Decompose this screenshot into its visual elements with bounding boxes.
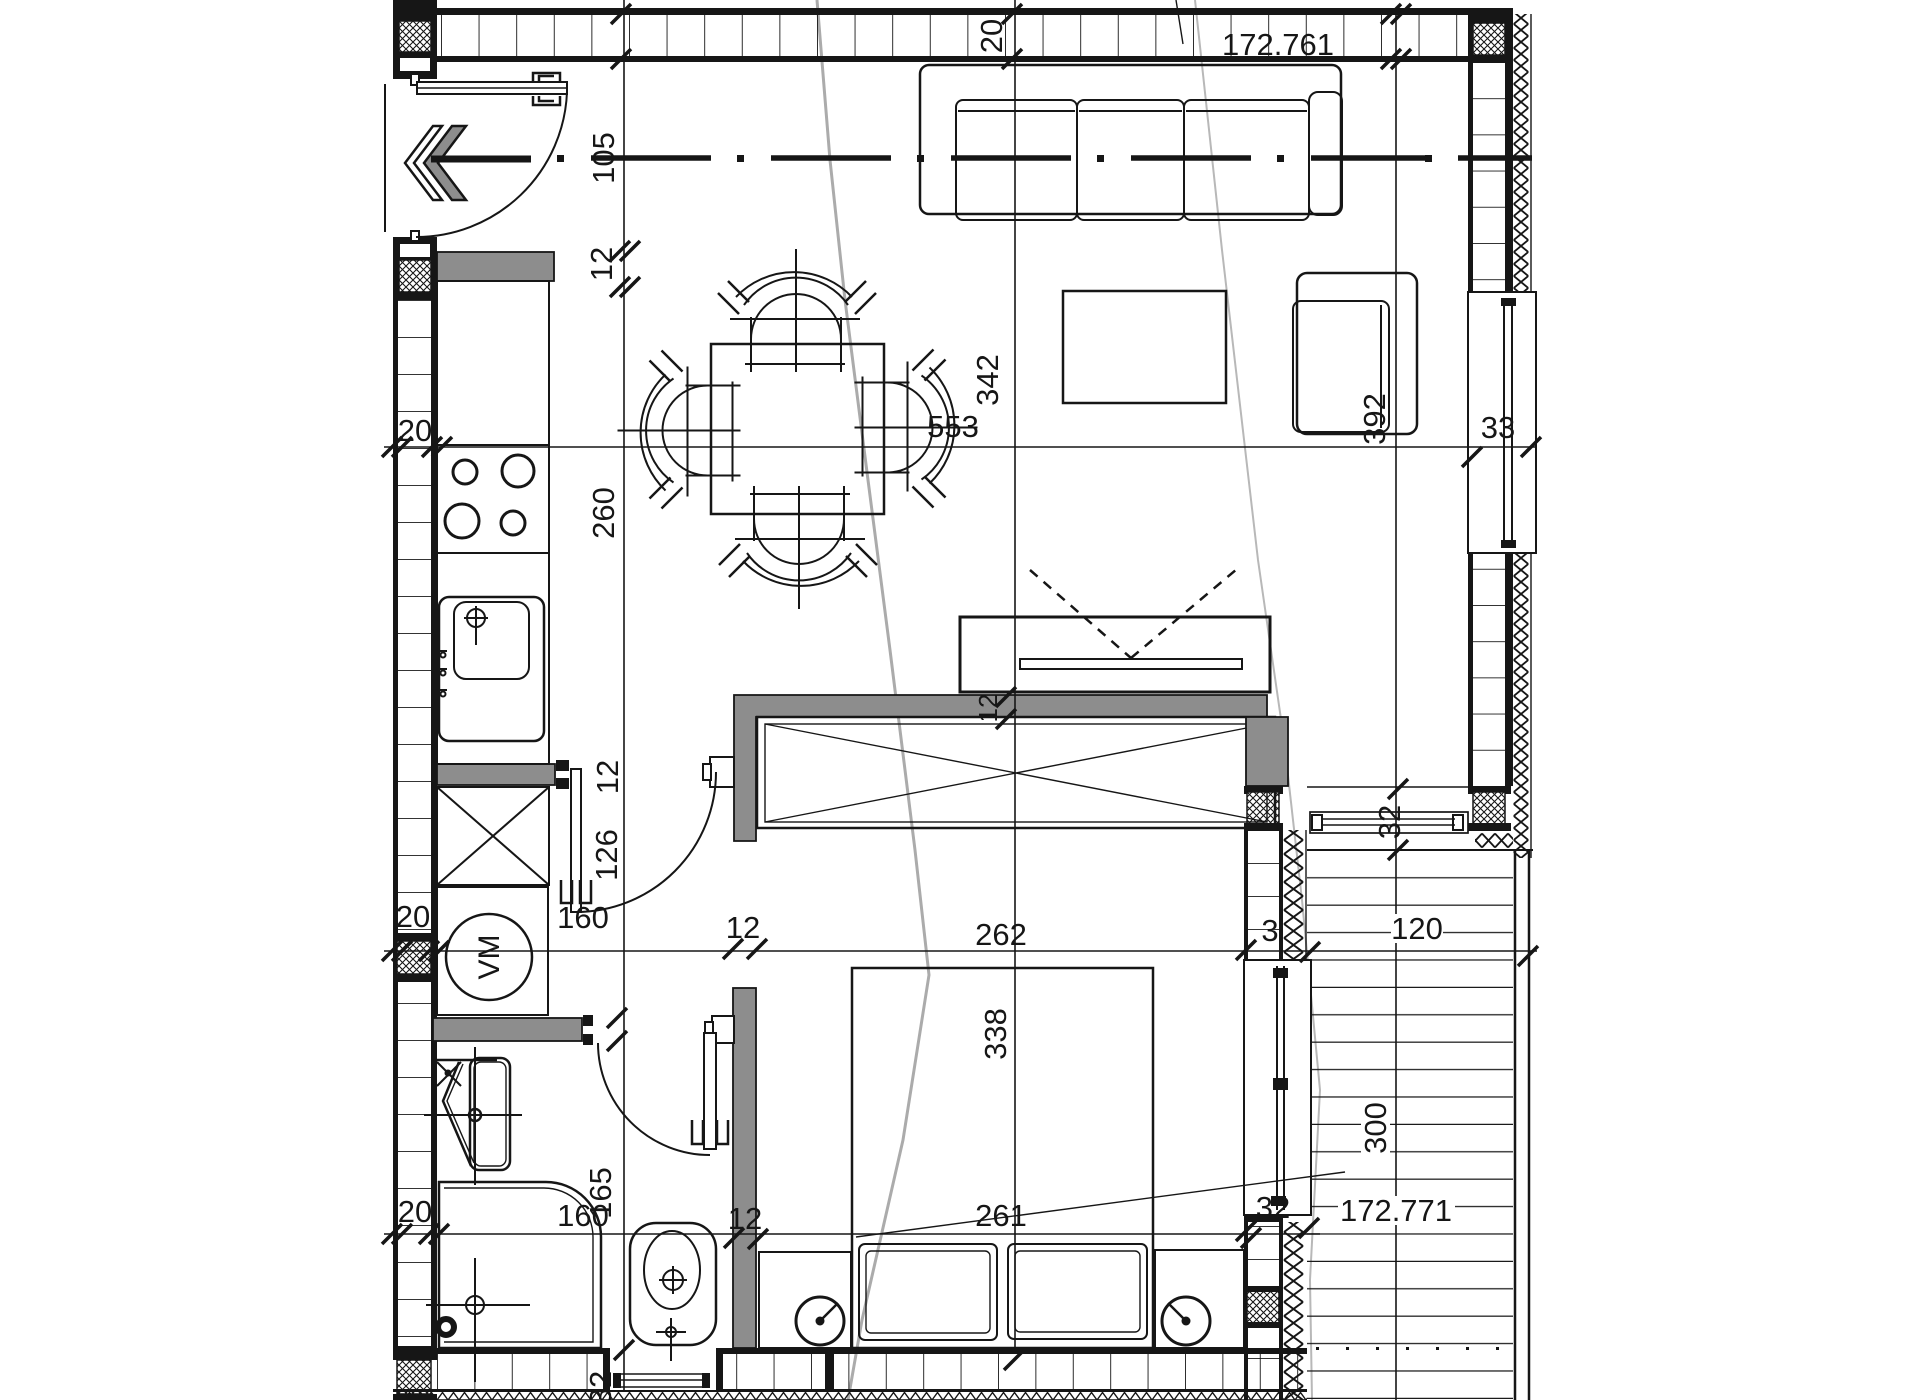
- svg-text:12: 12: [584, 247, 619, 281]
- svg-text:392: 392: [1357, 393, 1392, 445]
- svg-text:32: 32: [1372, 805, 1407, 839]
- svg-text:262: 262: [975, 917, 1027, 952]
- svg-text:105: 105: [586, 132, 621, 184]
- svg-text:160: 160: [557, 900, 609, 935]
- svg-text:342: 342: [970, 354, 1005, 406]
- svg-text:172.761: 172.761: [1222, 27, 1334, 62]
- svg-text:20: 20: [396, 899, 430, 934]
- svg-text:338: 338: [978, 1008, 1013, 1060]
- svg-text:261: 261: [975, 1198, 1027, 1233]
- svg-text:126: 126: [589, 829, 624, 881]
- svg-text:260: 260: [586, 487, 621, 539]
- svg-text:120: 120: [1391, 911, 1443, 946]
- svg-text:32: 32: [1256, 1190, 1290, 1225]
- svg-text:32: 32: [583, 1371, 618, 1400]
- svg-text:12: 12: [726, 910, 760, 945]
- svg-text:12: 12: [590, 760, 625, 794]
- svg-text:553: 553: [927, 409, 979, 444]
- svg-text:20: 20: [398, 413, 432, 448]
- svg-text:VM: VM: [473, 935, 506, 980]
- svg-text:20: 20: [974, 19, 1009, 53]
- svg-text:3: 3: [1261, 913, 1278, 948]
- svg-text:172.771: 172.771: [1340, 1193, 1452, 1228]
- svg-text:300: 300: [1358, 1102, 1393, 1154]
- svg-text:12: 12: [728, 1201, 762, 1236]
- svg-text:33: 33: [1481, 410, 1515, 445]
- svg-text:160: 160: [557, 1198, 609, 1233]
- svg-text:12: 12: [973, 694, 1003, 723]
- svg-text:20: 20: [398, 1194, 432, 1229]
